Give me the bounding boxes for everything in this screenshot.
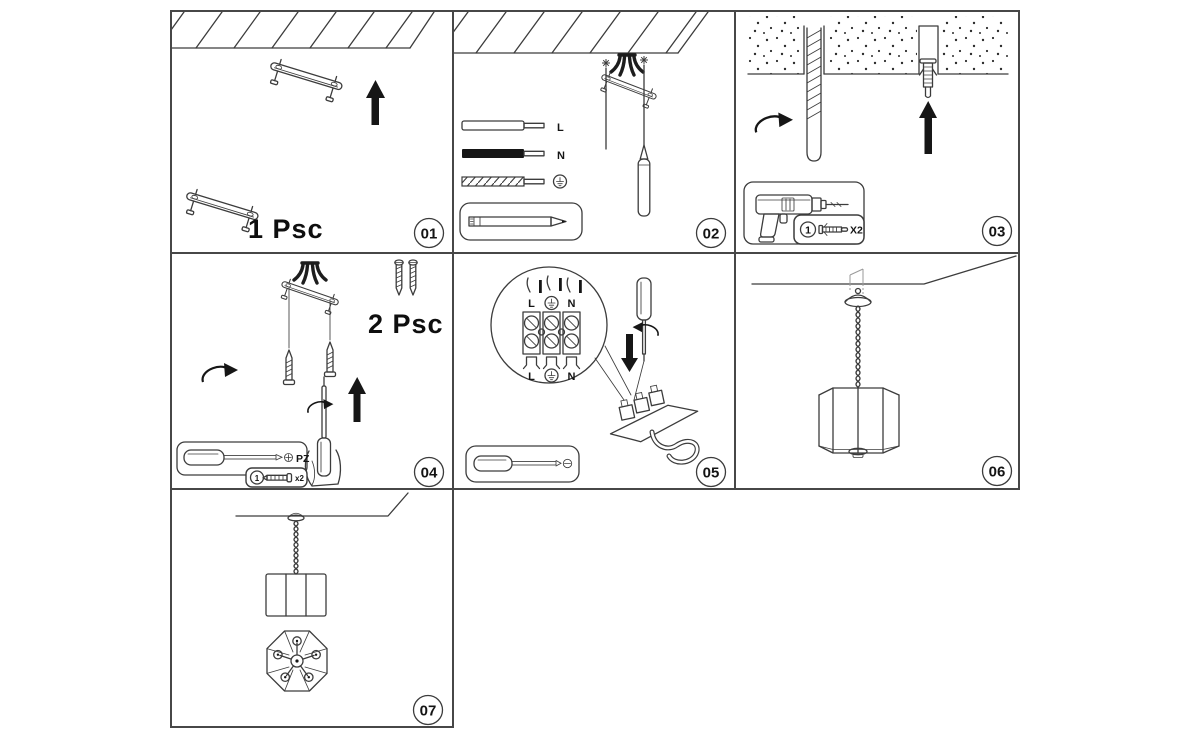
kit-inset: 1 x2 bbox=[246, 468, 307, 487]
ceiling-hatch bbox=[454, 12, 708, 53]
screw-icon bbox=[409, 260, 417, 295]
rotation-arrow-icon bbox=[203, 363, 238, 382]
earth-icon bbox=[554, 175, 567, 188]
kit-quantity-label: x2 bbox=[295, 474, 304, 483]
bit-type-label: PZ bbox=[296, 453, 310, 465]
kit-item-number: 1 bbox=[805, 224, 811, 236]
lampshade bbox=[819, 388, 899, 458]
ceiling-line bbox=[236, 493, 408, 516]
kit-inset: 1 X2 bbox=[794, 215, 864, 244]
wire-curl bbox=[652, 432, 697, 462]
terminal-neutral-label: N bbox=[568, 298, 576, 310]
wire-live bbox=[462, 121, 544, 130]
svg-text:01: 01 bbox=[421, 225, 438, 242]
step-panel-07: 07 bbox=[170, 488, 454, 728]
claw-mark-icon bbox=[294, 263, 326, 283]
wire-earth bbox=[462, 175, 567, 188]
screw-icon bbox=[325, 342, 336, 377]
braided-cord bbox=[856, 306, 860, 387]
pozidriv-screwdriver-icon bbox=[184, 450, 293, 465]
svg-text:07: 07 bbox=[420, 702, 437, 719]
step-badge: 07 bbox=[414, 696, 443, 725]
mounting-bracket-icon bbox=[278, 277, 341, 316]
step-badge: 03 bbox=[983, 217, 1012, 246]
screwdriver-icon bbox=[318, 377, 331, 476]
earth-icon bbox=[545, 297, 558, 310]
kit-item-number: 1 bbox=[255, 474, 260, 483]
rotation-arrow-icon bbox=[756, 112, 793, 132]
quantity-label: 2 Psc bbox=[368, 309, 444, 339]
octagon-bottom-view bbox=[267, 631, 327, 691]
callout-line bbox=[595, 358, 624, 400]
step-badge: 02 bbox=[697, 219, 726, 248]
pendant-tube-icon bbox=[638, 145, 650, 216]
step-panel-05: L N L N bbox=[452, 252, 736, 490]
step-panel-03: 1 X2 03 bbox=[734, 10, 1020, 254]
concrete-ceiling bbox=[748, 14, 1008, 74]
svg-text:05: 05 bbox=[703, 464, 720, 481]
step-badge: 01 bbox=[415, 219, 444, 248]
wire-neutral bbox=[462, 149, 544, 158]
earth-icon bbox=[545, 369, 558, 382]
rotation-arrow-icon bbox=[308, 399, 334, 413]
terminal-live-label: L bbox=[528, 371, 535, 383]
step-badge: 05 bbox=[697, 458, 726, 487]
down-arrow-icon bbox=[621, 334, 638, 372]
svg-text:02: 02 bbox=[703, 225, 720, 242]
terminal-detail-circle: L N L N bbox=[491, 267, 607, 383]
braided-cord bbox=[294, 521, 298, 574]
screw-icon bbox=[395, 260, 403, 295]
wire-live-label: L bbox=[557, 122, 564, 134]
hand-sleeve bbox=[305, 450, 340, 486]
pencil-icon bbox=[460, 203, 582, 240]
toolbox: PZ 1 x2 bbox=[177, 442, 310, 487]
wire-neutral-label: N bbox=[557, 150, 565, 162]
flat-screwdriver-icon bbox=[474, 456, 572, 471]
ceiling-hatch bbox=[172, 12, 434, 48]
step-badge: 04 bbox=[415, 458, 444, 487]
bulb-spider-icon bbox=[274, 637, 321, 682]
kit-quantity-label: X2 bbox=[850, 225, 863, 237]
toolbox bbox=[466, 446, 579, 482]
quantity-label: 1 Psc bbox=[248, 214, 324, 244]
screwdriver-icon bbox=[634, 278, 651, 400]
lampshade-side-view bbox=[266, 574, 326, 616]
claw-mark-icon bbox=[611, 55, 643, 75]
svg-text:03: 03 bbox=[989, 223, 1006, 240]
step-badge: 06 bbox=[983, 457, 1012, 486]
svg-text:06: 06 bbox=[989, 463, 1006, 480]
toolbox: 1 X2 bbox=[744, 182, 864, 244]
step-panel-06: 06 bbox=[734, 252, 1020, 490]
step-panel-01: 1 Psc 01 bbox=[170, 10, 454, 254]
mounting-bracket-icon bbox=[266, 57, 344, 103]
canopy-icon bbox=[845, 289, 871, 307]
screw-icon bbox=[284, 350, 295, 385]
instruction-sheet: 1 Psc 01 L bbox=[0, 0, 1200, 750]
terminal-neutral-label: N bbox=[568, 371, 576, 383]
up-arrow-icon bbox=[366, 80, 385, 125]
up-arrow-icon bbox=[919, 101, 937, 154]
step-panel-02: L N 02 bbox=[452, 10, 736, 254]
svg-text:04: 04 bbox=[421, 464, 438, 481]
up-arrow-icon bbox=[348, 377, 366, 422]
step-panel-04: 2 Psc PZ bbox=[170, 252, 454, 490]
terminal-live-label: L bbox=[528, 298, 535, 310]
canopy-icon bbox=[288, 513, 304, 521]
ceiling-line bbox=[752, 256, 1016, 284]
